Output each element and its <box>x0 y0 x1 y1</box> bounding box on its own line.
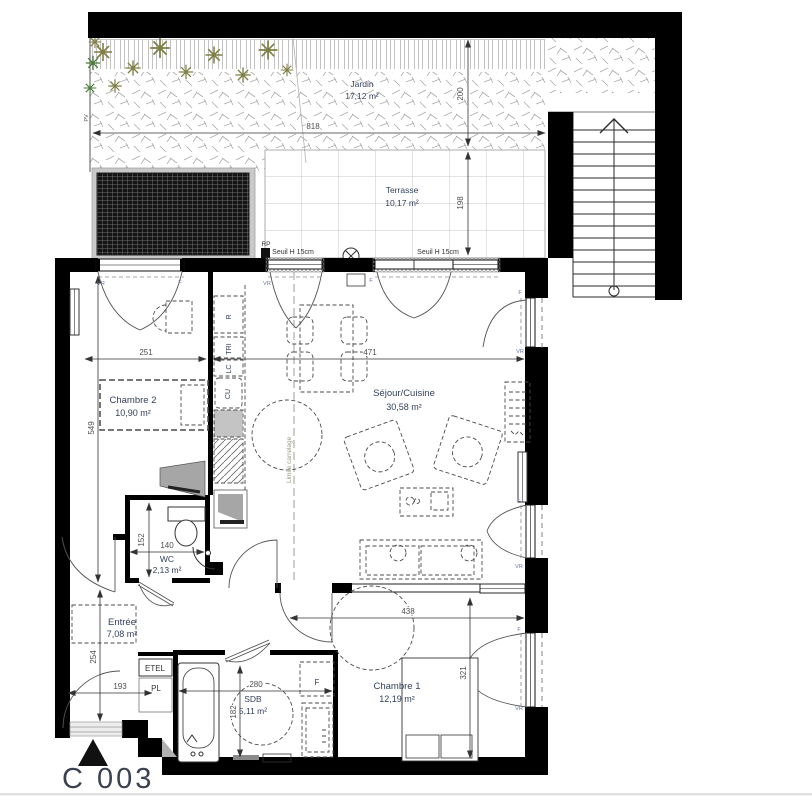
rp-label: RP <box>261 241 270 248</box>
room-area-entree: 7,08 m² <box>107 629 138 639</box>
room-label-wc: WC <box>160 554 174 564</box>
towel-rail <box>233 755 259 760</box>
f-label: F <box>178 280 182 286</box>
sofa-pillow <box>461 545 477 561</box>
page-bottom-rule <box>0 793 812 796</box>
toilet-tank <box>168 507 205 521</box>
dim-818: 818 <box>306 122 320 131</box>
entrance-threshold[interactable] <box>70 722 122 736</box>
kitchen-lc-label: LC <box>226 365 233 374</box>
room-label-terrasse: Terrasse <box>386 185 419 195</box>
dining-table <box>300 305 353 392</box>
tv-screen-sejour <box>220 520 244 524</box>
ventilation-grille <box>97 173 249 255</box>
wall-top <box>88 12 682 38</box>
bathtub <box>178 663 219 762</box>
door-hall-sejour <box>229 540 277 588</box>
dim-193: 193 <box>113 682 127 691</box>
dim-549: 549 <box>87 421 96 435</box>
unit-label: C 003 <box>62 763 154 795</box>
dining-chair <box>341 317 367 344</box>
floor-plan-page: Jardin 17,12 m² Terrasse 10,17 m² Séjour… <box>0 0 812 800</box>
turning-circle-chambre1 <box>330 586 414 670</box>
vr-label: VR <box>263 281 271 287</box>
coffee-table-tray <box>431 492 448 510</box>
sink-unit <box>214 410 243 437</box>
wall-right-2 <box>525 347 548 505</box>
pillow-chambre1 <box>406 735 439 758</box>
wall-bottom <box>162 757 548 775</box>
wall-right-3 <box>525 558 548 633</box>
washing-machine-marks <box>322 730 326 742</box>
toilet-bowl <box>175 520 197 546</box>
kitchen-cu-label: CU <box>225 389 232 399</box>
decor-icon <box>415 499 420 504</box>
basin-tap-icon <box>206 551 211 556</box>
wall-wc-left <box>125 495 130 583</box>
chair-chambre2 <box>153 305 166 331</box>
seuil-label-1: Seuil H 15cm <box>272 249 314 256</box>
dashed-lines-group <box>98 272 542 707</box>
wall-right-1 <box>525 258 548 298</box>
wall-bottom-step <box>138 738 162 757</box>
room-label-sejour: Séjour/Cuisine <box>373 388 435 399</box>
f-label: F <box>517 627 521 633</box>
wall-stair-left <box>548 112 573 258</box>
pl-label: PL <box>151 684 161 693</box>
wall-sdb-top-1 <box>173 650 225 655</box>
room-area-wc: 2,13 m² <box>153 565 182 575</box>
staircase <box>573 112 655 297</box>
swing-sejour-right-top <box>483 300 527 347</box>
wall-sejour-chambre1-pier <box>332 583 352 593</box>
rp-marker <box>261 248 270 258</box>
garden-gravel-hatch-right <box>545 38 655 93</box>
shutter-box <box>347 274 365 286</box>
dim-198: 198 <box>456 196 465 210</box>
entrance-arrow-icon <box>78 739 108 766</box>
room-label-sdb: SDB <box>244 694 262 704</box>
sofa-pillow <box>390 545 406 561</box>
shelf-lines <box>509 392 526 435</box>
limite-carrelage-label: Limite carrelage <box>286 436 293 483</box>
dim-254: 254 <box>89 650 98 664</box>
wall-wc-top <box>125 495 210 500</box>
etel-label: ETEL <box>145 664 166 673</box>
f-label: F <box>518 290 522 296</box>
dim-200: 200 <box>456 87 465 101</box>
door-wc <box>138 582 174 606</box>
casement-sejour-doors <box>377 272 451 318</box>
wall-wc-bottom-2 <box>172 578 210 583</box>
wall-sdb-top-2 <box>270 650 336 655</box>
door-chambre1 <box>280 593 332 642</box>
wall-sejour-chambre1 <box>280 584 480 592</box>
vr-label: VR <box>515 706 523 712</box>
wall-wc-bottom-1 <box>125 578 139 583</box>
room-area-jardin: 17,12 m² <box>345 91 379 101</box>
room-area-chambre1: 12,19 m² <box>379 694 415 704</box>
room-area-sdb: 5,11 m² <box>239 706 267 716</box>
vr-label: VR <box>97 281 105 287</box>
f-label: F <box>369 278 373 284</box>
desk-chambre2 <box>166 301 192 333</box>
decor-icon <box>406 497 414 505</box>
room-label-entree: Entrée <box>108 617 136 628</box>
pv-label: PV <box>84 114 90 122</box>
room-label-chambre2: Chambre 2 <box>110 395 157 406</box>
kitchen-tri-label: TRI <box>226 343 233 354</box>
dim-438: 438 <box>401 607 415 616</box>
seuil-label-2: Seuil H 15cm <box>417 249 459 256</box>
pillow-chambre2 <box>181 385 204 425</box>
dim-280: 280 <box>249 680 263 689</box>
wall-sdb-left <box>173 650 178 757</box>
dim-140: 140 <box>160 541 174 550</box>
washing-machine <box>302 703 333 757</box>
pillow-chambre1 <box>441 735 472 758</box>
garden-gravel-hatch <box>90 72 545 150</box>
room-area-sejour: 30,58 m² <box>386 402 422 412</box>
wall-chambre1-left <box>333 650 338 760</box>
wall-etel-top <box>138 652 173 656</box>
vr-label: VR <box>515 564 523 570</box>
wall-left <box>55 258 70 738</box>
room-label-chambre1: Chambre 1 <box>374 681 421 692</box>
wall-apartment-top-2 <box>182 258 268 272</box>
kitchen-fridge-label: R <box>226 314 233 319</box>
wall-entrance-jamb <box>122 720 148 738</box>
garden-hedge-hatch <box>90 38 545 72</box>
wall-apartment-top-3 <box>322 258 375 272</box>
floor-plan-drawing: Jardin 17,12 m² Terrasse 10,17 m² Séjour… <box>0 0 812 800</box>
dim-471: 471 <box>363 348 377 357</box>
kitchen-hatched-unit <box>214 439 243 483</box>
vr-label: VR <box>516 349 524 355</box>
duct-f-label: F <box>315 678 320 687</box>
dim-321: 321 <box>459 666 468 680</box>
armchair-left <box>343 419 415 491</box>
casement-sejour-left <box>270 272 322 328</box>
dim-182: 182 <box>229 705 238 719</box>
wall-stair-right <box>655 38 682 300</box>
dim-152: 152 <box>137 533 146 547</box>
sofa-cushion <box>366 546 419 575</box>
room-label-jardin: Jardin <box>350 79 373 89</box>
wall-wc-right <box>205 495 210 567</box>
dim-251: 251 <box>139 348 153 357</box>
door-entrance <box>63 671 120 728</box>
room-area-terrasse: 10,17 m² <box>385 198 419 208</box>
door-sdb <box>225 640 270 662</box>
armchair-right <box>433 415 504 486</box>
room-area-chambre2: 10,90 m² <box>115 408 151 418</box>
